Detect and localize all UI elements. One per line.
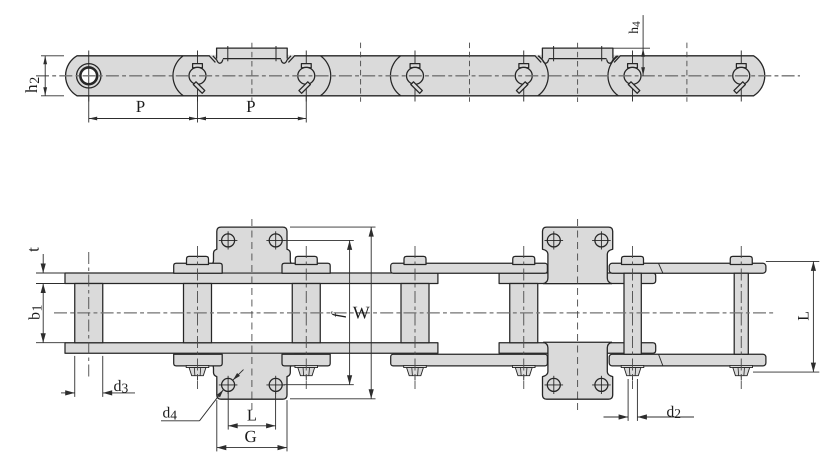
svg-text:W: W (353, 302, 370, 322)
svg-text:P: P (246, 97, 255, 116)
svg-text:d2: d2 (667, 403, 682, 421)
svg-text:L: L (795, 311, 812, 321)
svg-text:P: P (136, 97, 145, 116)
svg-text:d4: d4 (163, 405, 178, 423)
svg-text:G: G (244, 427, 256, 446)
svg-text:t: t (24, 247, 43, 252)
svg-text:d3: d3 (114, 378, 129, 396)
svg-text:L: L (247, 405, 257, 424)
